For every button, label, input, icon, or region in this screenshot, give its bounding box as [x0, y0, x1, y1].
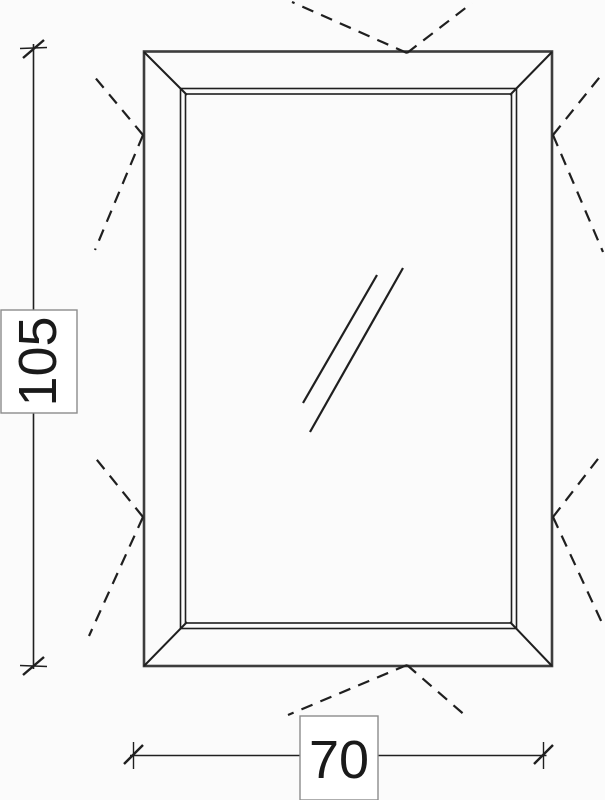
mitre-joint-bottom-right [510, 622, 552, 666]
dimension-height-label: 105 [8, 316, 68, 406]
mitre-joint-bottom-left [144, 622, 187, 666]
opening-direction-lines [89, 2, 603, 717]
window-drawing-canvas: 105 70 [0, 0, 605, 800]
window-technical-drawing: 105 70 [0, 0, 605, 800]
frame-inner-rect-inner [186, 94, 512, 623]
opening-dash-right-lower-up-arm [553, 455, 601, 517]
opening-dash-left-lower-up-arm [93, 455, 143, 517]
mitre-joint-top-right [510, 52, 552, 95]
dimension-width: 70 [124, 716, 553, 800]
opening-dash-left-upper-down-arm [95, 135, 143, 250]
glass-pane [303, 268, 403, 432]
glass-reflection-line [303, 275, 377, 403]
opening-dash-right-upper-up-arm [553, 73, 603, 135]
opening-dash-top-right-arm [407, 3, 472, 53]
mitre-joint-top-left [144, 52, 187, 95]
opening-dash-bottom-right-arm [407, 665, 467, 717]
opening-dash-right-upper-down-arm [553, 135, 603, 252]
opening-dash-bottom-left-arm [288, 665, 407, 715]
dimension-width-label: 70 [309, 730, 369, 790]
dimension-height: 105 [1, 40, 77, 675]
glass-reflection-line [310, 268, 403, 432]
frame-outer-rect [144, 52, 552, 667]
opening-dash-left-lower-down-arm [89, 517, 143, 636]
opening-dash-left-upper-up-arm [93, 75, 143, 135]
window-frame [144, 52, 552, 667]
opening-dash-top-left-arm [292, 2, 407, 53]
frame-inner-rect-outer [181, 89, 517, 629]
opening-dash-right-lower-down-arm [553, 517, 603, 625]
